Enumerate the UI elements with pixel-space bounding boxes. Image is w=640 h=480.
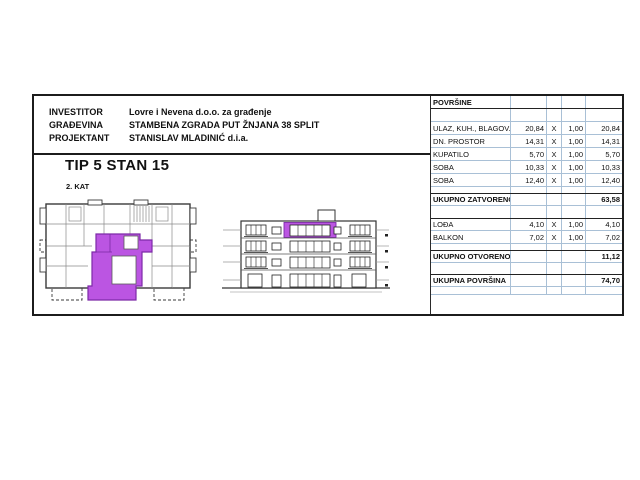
multiply-sign: X [547,122,562,134]
total-all-row: UKUPNA POVRŠINA 74,70 [431,274,622,287]
floor-plan-drawing [38,196,198,308]
floor-label: 2. KAT [66,182,89,191]
total-open-value: 11,12 [586,251,622,262]
area-row: SOBA 12,40 X 1,00 12,40 [431,174,622,187]
room-label: BALKON [431,231,511,243]
room-factor: 1,00 [562,231,586,243]
total-closed-value: 63,58 [586,194,622,205]
multiply-sign: X [547,231,562,243]
drawing-sheet: INVESTITOR Lovre i Nevena d.o.o. za građ… [0,0,640,480]
area-row: LOĐA 4,10 X 1,00 4,10 [431,218,622,231]
sheet-frame: INVESTITOR Lovre i Nevena d.o.o. za građ… [32,94,624,316]
room-area: 7,02 [511,231,547,243]
room-total: 5,70 [586,148,622,160]
area-row: KUPATILO 5,70 X 1,00 5,70 [431,148,622,161]
room-total: 14,31 [586,135,622,147]
multiply-sign: X [547,161,562,173]
room-total: 20,84 [586,122,622,134]
investitor-label: INVESTITOR [49,106,103,119]
room-area: 10,33 [511,161,547,173]
gradevina-label: GRAĐEVINA [49,119,103,132]
room-area: 5,70 [511,148,547,160]
room-factor: 1,00 [562,135,586,147]
header-divider [34,153,431,155]
total-all-label: UKUPNA POVRŠINA [431,275,511,286]
multiply-sign: X [547,219,562,230]
table-header-row: POVRŠINE [431,96,622,109]
elevation-drawing [220,200,392,298]
room-total: 7,02 [586,231,622,243]
info-row-gradevina: GRAĐEVINA STAMBENA ZGRADA PUT ŽNJANA 38 … [49,119,424,132]
gradevina-value: STAMBENA ZGRADA PUT ŽNJANA 38 SPLIT [129,119,319,132]
multiply-sign: X [547,135,562,147]
area-row: SOBA 10,33 X 1,00 10,33 [431,161,622,174]
room-area: 12,40 [511,174,547,186]
info-row-investitor: INVESTITOR Lovre i Nevena d.o.o. za građ… [49,106,424,119]
multiply-sign: X [547,148,562,160]
room-total: 10,33 [586,161,622,173]
area-row: DN. PROSTOR 14,31 X 1,00 14,31 [431,135,622,148]
room-label: SOBA [431,174,511,186]
total-closed-row: UKUPNO ZATVORENO 63,58 [431,193,622,206]
spacer-row [431,287,622,295]
room-factor: 1,00 [562,174,586,186]
room-factor: 1,00 [562,122,586,134]
area-row: ULAZ, KUH., BLAGOV. 20,84 X 1,00 20,84 [431,122,622,135]
room-total: 12,40 [586,174,622,186]
project-info: INVESTITOR Lovre i Nevena d.o.o. za građ… [49,106,424,145]
room-label: ULAZ, KUH., BLAGOV. [431,122,511,134]
room-label: KUPATILO [431,148,511,160]
spacer-row [431,206,622,219]
room-area: 14,31 [511,135,547,147]
room-area: 20,84 [511,122,547,134]
spacer-row [431,263,622,275]
room-label: SOBA [431,161,511,173]
info-row-projektant: PROJEKTANT STANISLAV MLADINIĆ d.i.a. [49,132,424,145]
total-closed-label: UKUPNO ZATVORENO [431,194,511,205]
room-label: DN. PROSTOR [431,135,511,147]
projektant-value: STANISLAV MLADINIĆ d.i.a. [129,132,248,145]
spacer-row [431,109,622,122]
investitor-value: Lovre i Nevena d.o.o. za građenje [129,106,272,119]
total-all-value: 74,70 [586,275,622,286]
room-total: 4,10 [586,219,622,230]
room-label: LOĐA [431,219,511,230]
area-row: BALKON 7,02 X 1,00 7,02 [431,231,622,244]
multiply-sign: X [547,174,562,186]
total-open-label: UKUPNO OTVORENO [431,251,511,262]
room-factor: 1,00 [562,161,586,173]
projektant-label: PROJEKTANT [49,132,109,145]
table-title: POVRŠINE [431,96,511,108]
total-open-row: UKUPNO OTVORENO 11,12 [431,250,622,263]
room-factor: 1,00 [562,219,586,230]
areas-table: POVRŠINE ULAZ, KUH., BLAGOV. 20,84 X 1,0… [431,96,622,295]
spacer-row [431,244,622,251]
room-area: 4,10 [511,219,547,230]
spacer-row [431,187,622,194]
page-title: TIP 5 STAN 15 [65,157,169,174]
room-factor: 1,00 [562,148,586,160]
